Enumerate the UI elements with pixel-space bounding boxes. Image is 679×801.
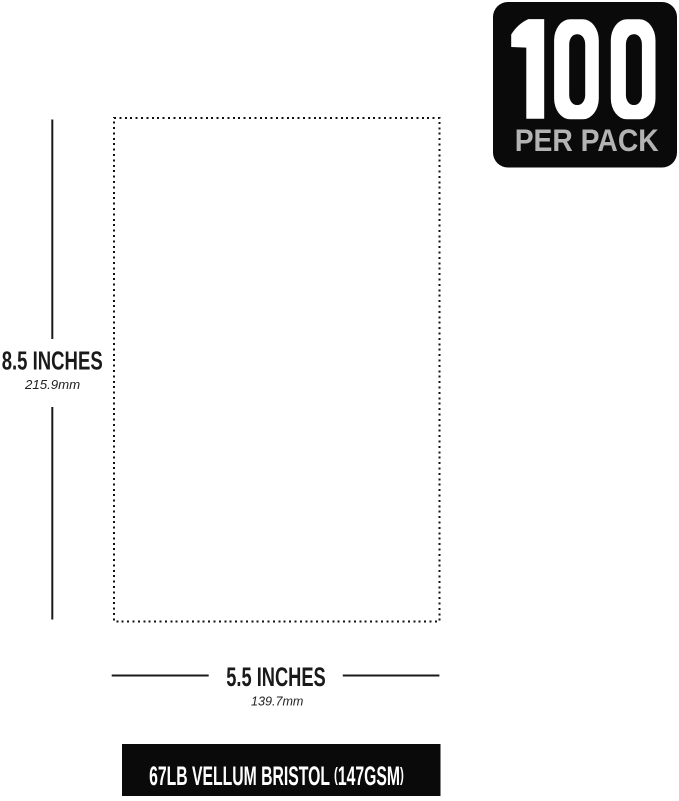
svg-text:139.7mm: 139.7mm (251, 693, 304, 708)
svg-text:5.5 INCHES: 5.5 INCHES (226, 662, 326, 692)
svg-text:215.9mm: 215.9mm (24, 377, 80, 392)
svg-text:8.5 INCHES: 8.5 INCHES (2, 346, 103, 376)
svg-text:PER PACK: PER PACK (515, 123, 659, 158)
svg-text:67LB VELLUM BRISTOL (147GSM): 67LB VELLUM BRISTOL (147GSM) (149, 761, 404, 791)
